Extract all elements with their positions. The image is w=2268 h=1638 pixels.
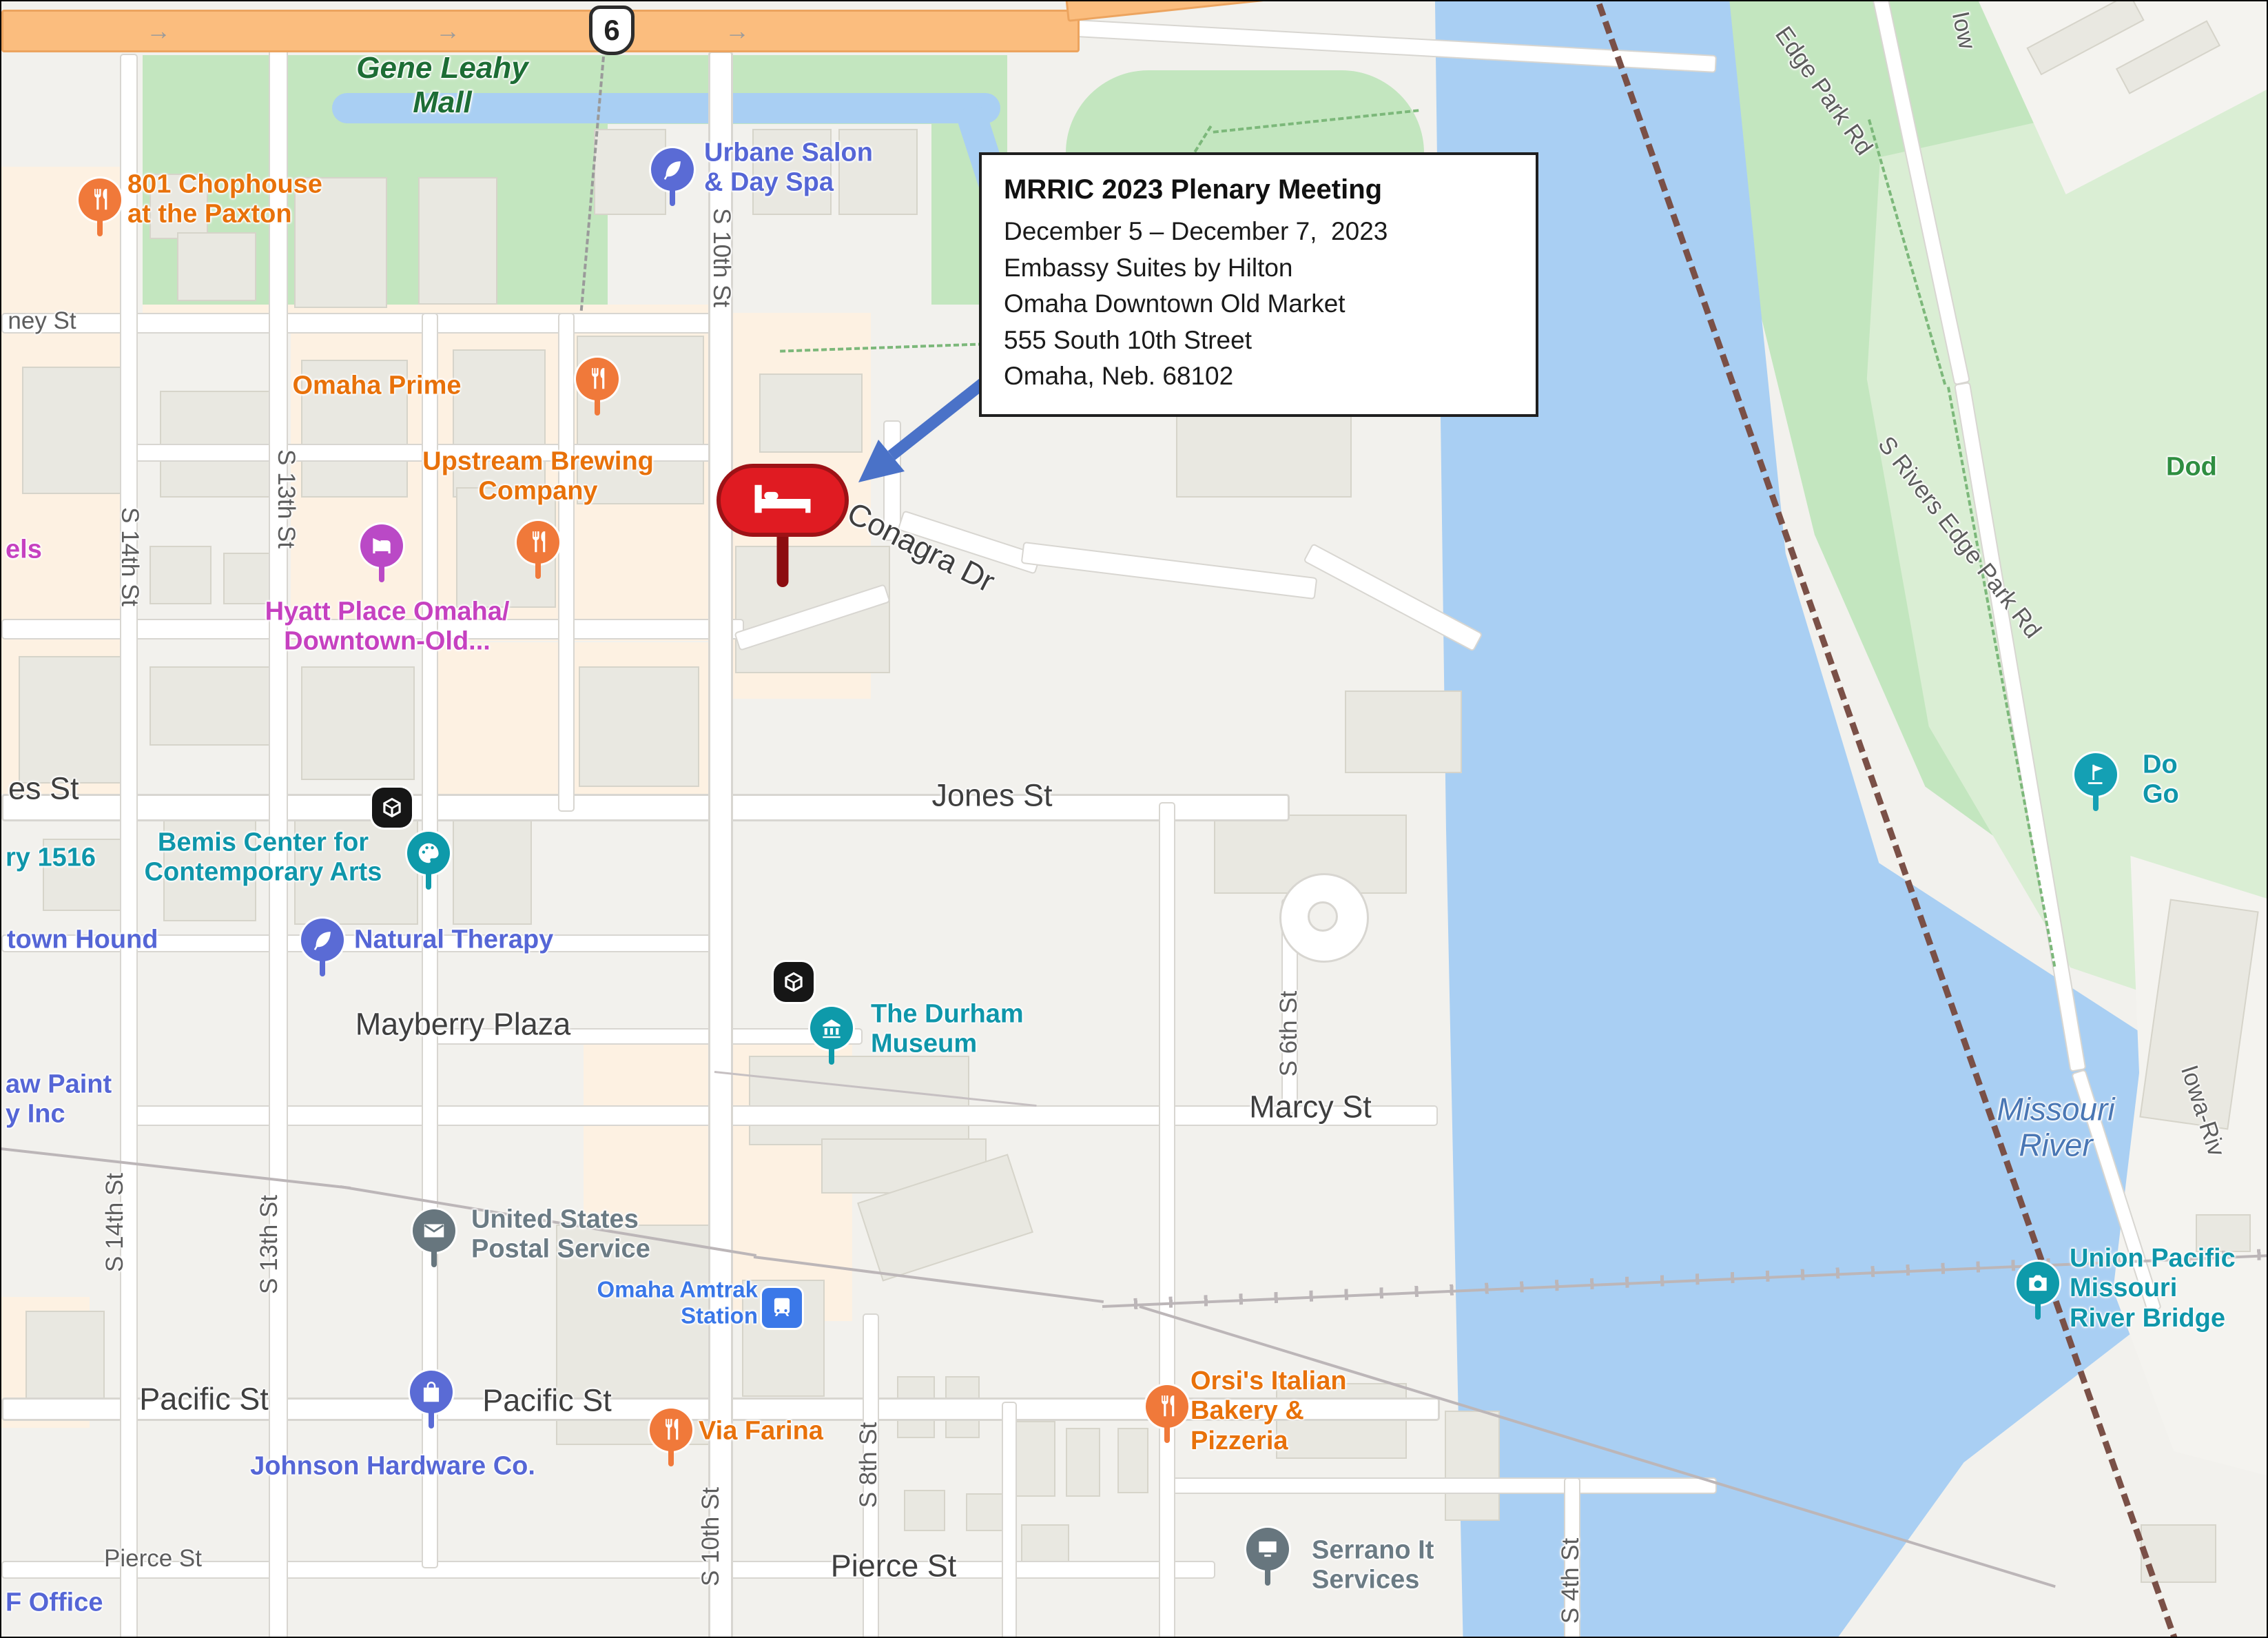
- serrano-monitor-icon[interactable]: [1246, 1528, 1289, 1570]
- s-14th-st-top-label: S 14th St: [116, 507, 143, 606]
- building: [453, 818, 532, 925]
- building: [759, 373, 863, 453]
- pacific-st-label: Pacific St: [482, 1382, 612, 1417]
- natural-therapy-leaf-icon[interactable]: [301, 919, 344, 961]
- building: [301, 666, 415, 780]
- durham-museum-icon[interactable]: [810, 1007, 853, 1050]
- union-pacific-bridge-label[interactable]: Union PacificMissouriRiver Bridge: [2070, 1244, 2236, 1333]
- natural-therapy-label[interactable]: Natural Therapy: [354, 925, 553, 954]
- orsis-italian-label[interactable]: Orsi's ItalianBakery &Pizzeria: [1190, 1366, 1347, 1456]
- highway-direction-arrow: →: [435, 17, 460, 45]
- bemis-art-icon[interactable]: [407, 832, 450, 874]
- 801-chophouse-label[interactable]: 801 Chophouseat the Paxton: [127, 170, 322, 230]
- upstream-brewing-label[interactable]: Upstream BrewingCompany: [422, 447, 654, 507]
- conagra-dr-road: [1021, 542, 1318, 600]
- golf-club-partial-label[interactable]: DoGo: [2143, 750, 2179, 810]
- raw-paint-partial-label[interactable]: aw Painty Inc: [6, 1070, 112, 1130]
- upstream-restaurant-icon[interactable]: [517, 521, 559, 564]
- durham-cube-icon[interactable]: [774, 962, 814, 1002]
- callout-lines: December 5 – December 7, 2023Embassy Sui…: [1004, 214, 1514, 395]
- marcy-st-label: Marcy St: [1249, 1089, 1372, 1124]
- town-hound-partial-label[interactable]: town Hound: [7, 925, 158, 954]
- mayberry-plaza-label: Mayberry Plaza: [355, 1006, 571, 1041]
- road: [1002, 1402, 1017, 1638]
- pierce-st-west-label: Pierce St: [104, 1545, 202, 1573]
- building: [150, 546, 212, 604]
- omaha-prime-label[interactable]: Omaha Prime: [293, 371, 462, 400]
- callout-title: MRRIC 2023 Plenary Meeting: [1004, 174, 1514, 205]
- railroad: [0, 1147, 351, 1189]
- harney-st-label: ney St: [8, 307, 76, 335]
- via-farina-label[interactable]: Via Farina: [699, 1416, 823, 1446]
- building: [1021, 1524, 1069, 1562]
- bemis-cube-icon[interactable]: [372, 788, 412, 828]
- s-8th-st-label: S 8th St: [855, 1422, 883, 1508]
- marcy-st-road: [129, 1105, 1438, 1126]
- bridge-camera-icon[interactable]: [2017, 1262, 2059, 1304]
- building: [19, 656, 122, 784]
- pacific-st-west-label: Pacific St: [139, 1381, 269, 1416]
- building: [25, 1311, 105, 1407]
- s-13th-st-top-label: S 13th St: [272, 449, 300, 549]
- pierce-st-label: Pierce St: [831, 1548, 957, 1583]
- orsis-restaurant-icon[interactable]: [1146, 1385, 1188, 1428]
- building: [966, 1493, 1004, 1531]
- golf-flag-icon[interactable]: [2074, 753, 2117, 796]
- s-10th-st-bottom-label: S 10th St: [697, 1487, 725, 1586]
- building: [177, 232, 256, 301]
- els-partial-label[interactable]: els: [6, 535, 42, 564]
- building: [418, 177, 497, 305]
- s-4th-st-label: S 4th St: [1557, 1538, 1585, 1624]
- omaha-prime-restaurant-icon[interactable]: [576, 358, 619, 400]
- usps-label[interactable]: United StatesPostal Service: [471, 1205, 650, 1265]
- building: [223, 553, 271, 604]
- hyatt-place-label[interactable]: Hyatt Place Omaha/Downtown-Old...: [265, 597, 510, 657]
- urbane-salon-label[interactable]: Urbane Salon& Day Spa: [704, 139, 873, 198]
- callout-line: Omaha, Neb. 68102: [1004, 358, 1514, 395]
- callout-line: December 5 – December 7, 2023: [1004, 214, 1514, 250]
- gene-leahy-mall-label: Gene LeahyMall: [356, 51, 528, 120]
- destination-hotel-marker[interactable]: [717, 464, 849, 537]
- road: [558, 313, 575, 812]
- jones-st-road: [1, 794, 1290, 821]
- callout-line: Embassy Suites by Hilton: [1004, 250, 1514, 287]
- building: [22, 367, 122, 494]
- gallery-1516-partial-label[interactable]: ry 1516: [6, 843, 96, 872]
- building: [1445, 1411, 1500, 1521]
- hyatt-hotel-icon[interactable]: [360, 524, 403, 567]
- building: [1066, 1428, 1100, 1497]
- building: [749, 1056, 969, 1145]
- jones-st-label: Jones St: [931, 777, 1052, 812]
- map-canvas: → → → 6 Gene LeahyMallney Stes StS 14th …: [0, 0, 2268, 1638]
- usps-mail-icon[interactable]: [413, 1209, 455, 1252]
- serrano-it-label[interactable]: Serrano ItServices: [1312, 1536, 1434, 1596]
- building: [1345, 690, 1462, 773]
- building: [904, 1490, 945, 1531]
- s-13th-st-bottom-label: S 13th St: [256, 1195, 283, 1294]
- building: [579, 666, 699, 787]
- bed-icon: [751, 479, 814, 522]
- missouri-river-label: MissouriRiver: [1997, 1092, 2114, 1164]
- building: [1117, 1428, 1148, 1493]
- jones-st-west-label: es St: [8, 770, 79, 806]
- s-14th-st-road: [120, 54, 138, 1638]
- f-office-partial-label[interactable]: F Office: [6, 1588, 103, 1617]
- roundabout: [1279, 873, 1369, 963]
- building: [1014, 1421, 1055, 1497]
- meeting-callout: MRRIC 2023 Plenary Meeting December 5 – …: [979, 152, 1538, 417]
- road: [1159, 802, 1175, 1638]
- johnson-bag-icon[interactable]: [410, 1371, 453, 1413]
- dodge-park-partial-label[interactable]: Dod: [2166, 452, 2217, 482]
- harney-st-road: [1, 313, 733, 334]
- highway-direction-arrow: →: [725, 17, 750, 45]
- durham-museum-label[interactable]: The DurhamMuseum: [871, 1000, 1024, 1060]
- callout-line: 555 South 10th Street: [1004, 323, 1514, 359]
- bemis-center-label[interactable]: Bemis Center forContemporary Arts: [145, 828, 382, 888]
- s-6th-st-label: S 6th St: [1275, 991, 1303, 1077]
- callout-line: Omaha Downtown Old Market: [1004, 286, 1514, 323]
- building: [150, 666, 270, 746]
- highway-direction-arrow: →: [146, 17, 171, 45]
- us-6-route-shield: 6: [589, 6, 635, 55]
- omaha-amtrak-label[interactable]: Omaha AmtrakStation: [597, 1276, 758, 1328]
- johnson-hardware-label[interactable]: Johnson Hardware Co.: [250, 1451, 535, 1481]
- road: [1166, 1477, 1717, 1494]
- destination-marker-stem: [777, 532, 789, 587]
- urbane-leaf-icon[interactable]: [651, 148, 694, 191]
- via-farina-restaurant-icon[interactable]: [650, 1409, 692, 1451]
- s-14th-st-bottom-label: S 14th St: [101, 1173, 129, 1272]
- s-10th-st-top-label: S 10th St: [708, 208, 735, 307]
- 801-chophouse-restaurant-icon[interactable]: [79, 178, 121, 221]
- amtrak-train-icon[interactable]: [762, 1288, 802, 1328]
